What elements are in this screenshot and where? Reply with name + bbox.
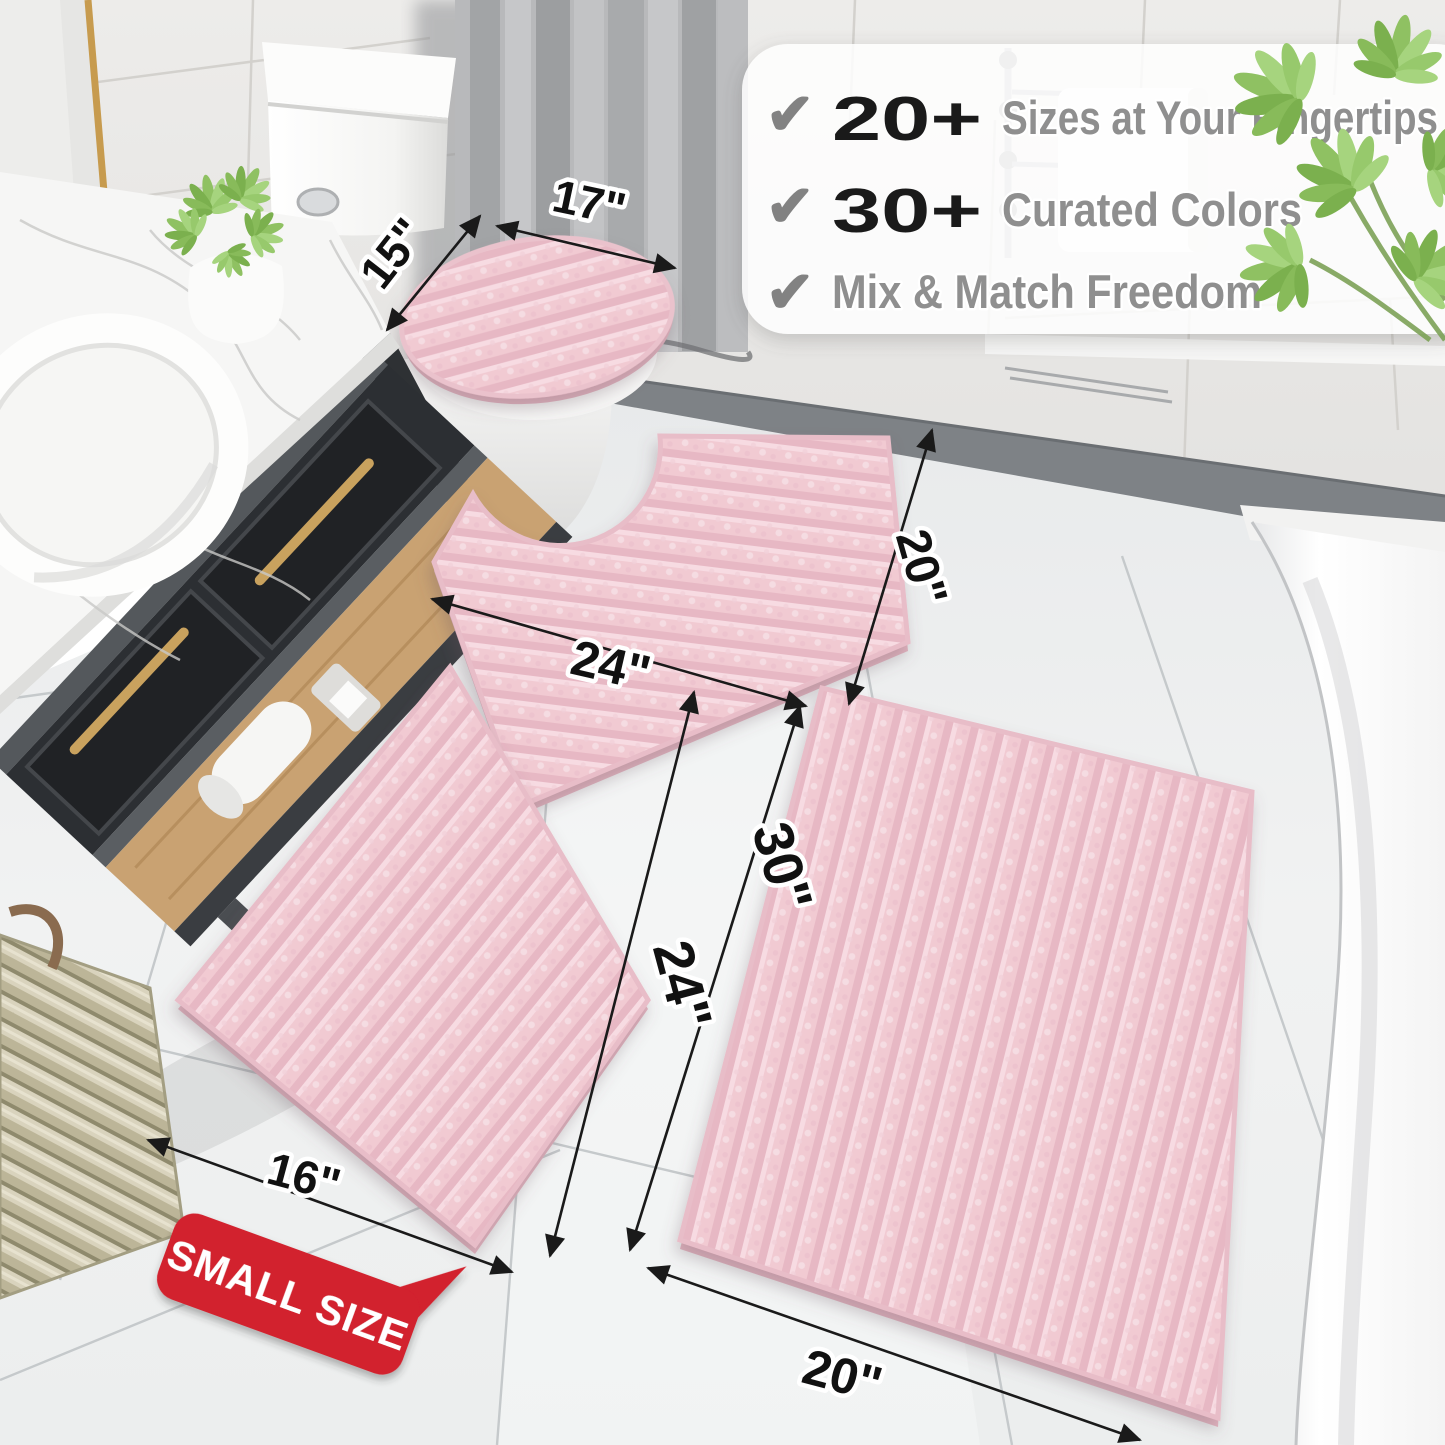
feature-mix-match: Mix & Match Freedom (832, 265, 1262, 318)
stat-sizes: 20+ (832, 85, 982, 154)
callout-row-1: ✔ 20+ Sizes at Your Fingertips (766, 82, 1438, 154)
check-icon: ✔ (766, 174, 815, 239)
flush-button (298, 189, 338, 215)
check-icon: ✔ (766, 82, 815, 147)
callout-row-3: ✔ Mix & Match Freedom (766, 260, 1262, 325)
bathroom-product-photo: 15" 17" 24" 20" 16" 24" 30" 20" SMALL SI… (0, 0, 1445, 1445)
stat-colors: 30+ (832, 177, 982, 246)
check-icon: ✔ (766, 260, 815, 325)
feature-sizes: Sizes at Your Fingertips (1002, 91, 1438, 144)
callout-row-2: ✔ 30+ Curated Colors (766, 174, 1302, 246)
feature-colors: Curated Colors (1002, 183, 1302, 236)
scene-canvas: 15" 17" 24" 20" 16" 24" 30" 20" SMALL SI… (0, 0, 1445, 1445)
